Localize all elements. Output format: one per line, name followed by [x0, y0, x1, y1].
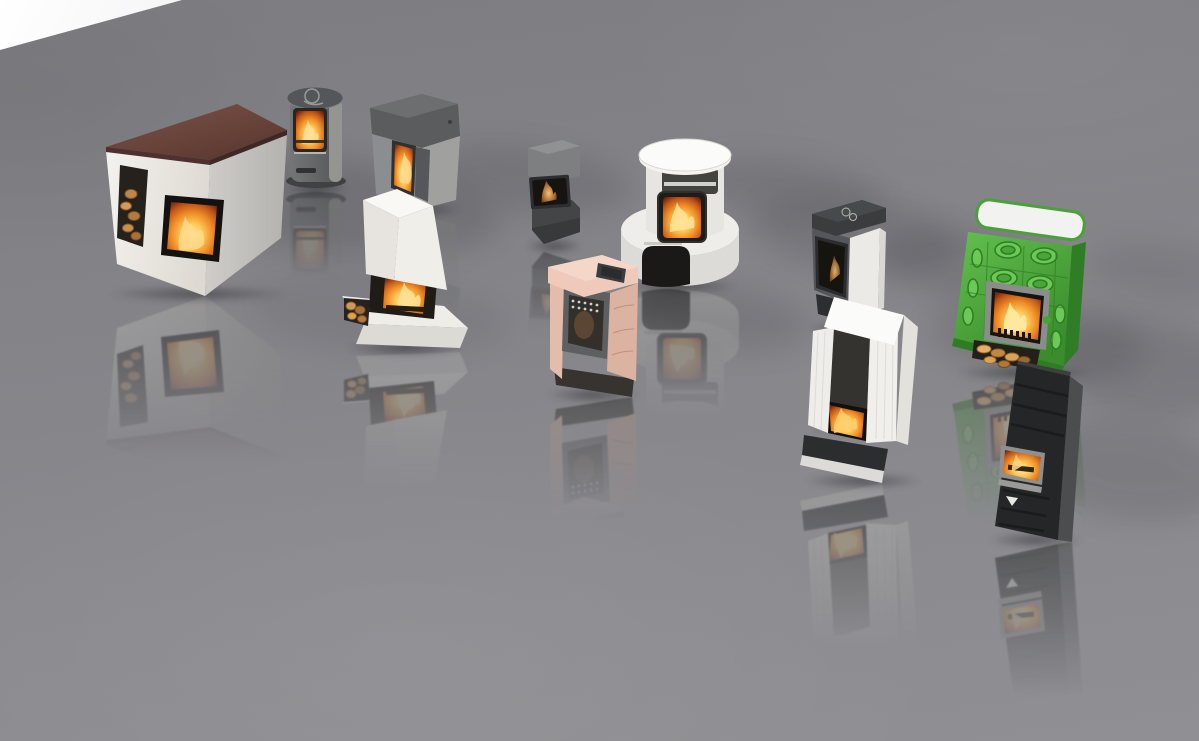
white-maroon-stove — [103, 104, 293, 296]
top-cap — [639, 405, 731, 437]
white-top-slab — [975, 198, 1086, 241]
green-tile-stove — [952, 198, 1096, 375]
white-maroon-stove-reflection — [103, 296, 293, 488]
render-stage — [0, 0, 1199, 741]
handle-notch — [296, 207, 316, 212]
black-column-stove — [986, 360, 1086, 542]
side-face — [896, 521, 918, 651]
small-dark-stove — [524, 140, 584, 248]
glow — [574, 455, 594, 483]
block-right-face — [394, 410, 447, 494]
gray-cylinder-stove — [284, 84, 350, 190]
glow — [574, 311, 594, 339]
white-backdrop — [0, 0, 182, 50]
door-latch — [1043, 316, 1051, 324]
white-fluted-stove — [800, 293, 926, 483]
black-column-stove-reflection — [986, 542, 1086, 724]
side-face — [896, 315, 918, 445]
peach-ceramic-stove-reflection — [544, 397, 642, 541]
white-fluted-stove-reflection — [800, 483, 926, 673]
peach-ceramic-stove — [544, 253, 642, 397]
left-pillar — [550, 281, 564, 379]
white-hearth-stove-reflection — [342, 350, 468, 514]
top-cap — [639, 139, 731, 171]
left-pillar — [550, 415, 564, 513]
oven-opening — [642, 289, 690, 330]
gray-cylinder-stove-reflection — [284, 190, 350, 296]
floor-shadow — [1082, 234, 1199, 310]
handle-notch — [296, 168, 316, 173]
right-pillar — [607, 283, 638, 381]
right-pillar — [607, 413, 638, 511]
oven-opening — [642, 246, 690, 287]
block-right-face — [394, 206, 447, 290]
fire-window-frame — [529, 175, 571, 210]
white-hearth-stove — [342, 186, 468, 350]
